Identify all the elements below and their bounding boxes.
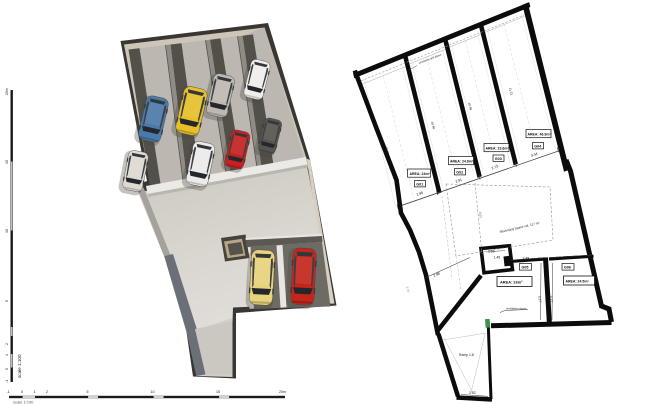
svg-text:2.48: 2.48 bbox=[523, 257, 530, 261]
svg-text:AREA: 46.9m²: AREA: 46.9m² bbox=[528, 133, 552, 137]
svg-text:-1: -1 bbox=[7, 390, 10, 394]
svg-text:AREA: 23.6m²: AREA: 23.6m² bbox=[486, 147, 510, 151]
svg-text:G04: G04 bbox=[534, 145, 542, 149]
svg-text:0: 0 bbox=[21, 390, 23, 394]
svg-text:2.02: 2.02 bbox=[469, 391, 476, 395]
svg-text:1: 1 bbox=[34, 390, 36, 394]
svg-text:scale 1:100: scale 1:100 bbox=[17, 354, 22, 378]
svg-text:5: 5 bbox=[87, 390, 89, 394]
svg-text:AREA: 24.5m²: AREA: 24.5m² bbox=[566, 280, 590, 284]
svg-text:2: 2 bbox=[5, 343, 9, 345]
svg-text:AREA: 26m²: AREA: 26m² bbox=[500, 280, 523, 285]
svg-text:10: 10 bbox=[5, 229, 9, 233]
svg-text:G03: G03 bbox=[495, 157, 502, 161]
svg-text:G02: G02 bbox=[456, 171, 463, 175]
svg-text:G01: G01 bbox=[416, 183, 423, 187]
svg-text:2: 2 bbox=[46, 390, 48, 394]
svg-text:ventilation doors: ventilation doors bbox=[506, 306, 527, 310]
svg-text:Ramp 1:8: Ramp 1:8 bbox=[459, 353, 474, 357]
svg-text:G06: G06 bbox=[564, 266, 571, 270]
svg-text:5.17: 5.17 bbox=[538, 296, 543, 303]
svg-text:10: 10 bbox=[151, 390, 155, 394]
svg-text:G05: G05 bbox=[522, 266, 529, 270]
svg-text:20m: 20m bbox=[279, 390, 286, 394]
svg-text:15: 15 bbox=[216, 390, 220, 394]
svg-text:3.38: 3.38 bbox=[564, 255, 571, 259]
svg-text:-1: -1 bbox=[5, 380, 9, 383]
svg-text:1: 1 bbox=[5, 354, 9, 356]
svg-text:scale 1:100: scale 1:100 bbox=[13, 400, 34, 404]
svg-text:AREA: 24.8m²: AREA: 24.8m² bbox=[450, 160, 474, 164]
svg-text:1.50: 1.50 bbox=[488, 250, 495, 254]
svg-text:1.49: 1.49 bbox=[494, 256, 501, 260]
svg-text:20m: 20m bbox=[5, 88, 9, 95]
svg-text:0: 0 bbox=[5, 368, 9, 370]
svg-text:5: 5 bbox=[5, 300, 9, 302]
svg-text:15: 15 bbox=[5, 160, 9, 164]
svg-text:AREA: 24m²: AREA: 24m² bbox=[410, 172, 431, 176]
svg-text:5.17: 5.17 bbox=[549, 296, 554, 303]
